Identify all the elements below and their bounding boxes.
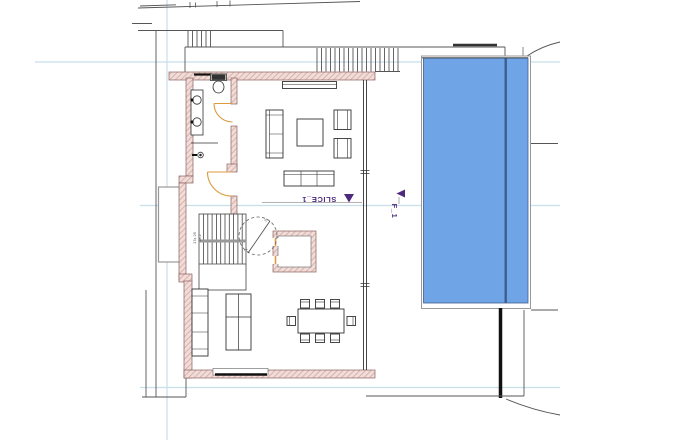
sink-2 — [193, 118, 201, 126]
tv-cabinet — [283, 82, 337, 89]
floor-plan-drawing: 17x 25 18,2 2x 2x — [0, 0, 700, 440]
circle-note-1: 2x — [263, 217, 269, 222]
left-bay — [159, 187, 181, 262]
chair — [316, 300, 325, 309]
sink-1 — [193, 96, 201, 104]
wall-left-mid — [179, 183, 186, 281]
pool-water — [424, 58, 529, 303]
slice-triangle-icon — [344, 194, 354, 203]
staircase: 17x 25 18,2 — [192, 214, 246, 290]
door-swings — [208, 104, 233, 197]
slice-section-label: SLICE_1 — [293, 194, 345, 204]
dining-set — [287, 300, 356, 343]
bottom-right-curve — [506, 399, 560, 415]
f1-triangle-icon — [397, 190, 406, 198]
floor-plan-canvas: 17x 25 18,2 2x 2x — [0, 0, 700, 440]
long-stair-treads — [317, 48, 398, 72]
chair — [331, 300, 340, 309]
wall-top — [169, 72, 375, 80]
glass-wall-right — [361, 80, 370, 370]
wall-left-lower — [184, 281, 192, 378]
chair — [287, 317, 296, 326]
chair — [301, 334, 310, 343]
sideboard — [284, 171, 334, 186]
kitchen — [192, 289, 251, 356]
armchair-1 — [334, 110, 351, 130]
wall-left-jog1 — [179, 176, 193, 183]
armchair-2 — [334, 139, 351, 159]
wall-partition-1 — [231, 78, 237, 104]
chair — [316, 334, 325, 343]
pool-lane-divider — [505, 58, 507, 303]
small-stair-treads — [188, 31, 211, 47]
door-arc-bathroom — [214, 104, 233, 123]
toilet-bowl — [213, 81, 224, 93]
coffee-table — [297, 119, 323, 146]
circle-note-2: 2x — [243, 247, 249, 252]
small-room-interior — [278, 236, 311, 267]
chair — [331, 334, 340, 343]
top-right-curve — [527, 42, 560, 56]
wall-partition-stub — [227, 164, 237, 172]
door-arc-hall — [208, 172, 232, 196]
living-furniture — [266, 82, 351, 187]
kitchen-counter — [192, 289, 208, 356]
wall-partition-3 — [231, 196, 237, 214]
dining-table — [298, 309, 344, 333]
stair-note-2: 18,2 — [197, 233, 202, 242]
pool — [422, 56, 531, 309]
bathroom-fixtures — [191, 74, 227, 158]
chair — [301, 300, 310, 309]
bottom-window — [213, 369, 268, 376]
chair — [347, 317, 356, 326]
f1-section-label: F_1 — [389, 199, 399, 223]
